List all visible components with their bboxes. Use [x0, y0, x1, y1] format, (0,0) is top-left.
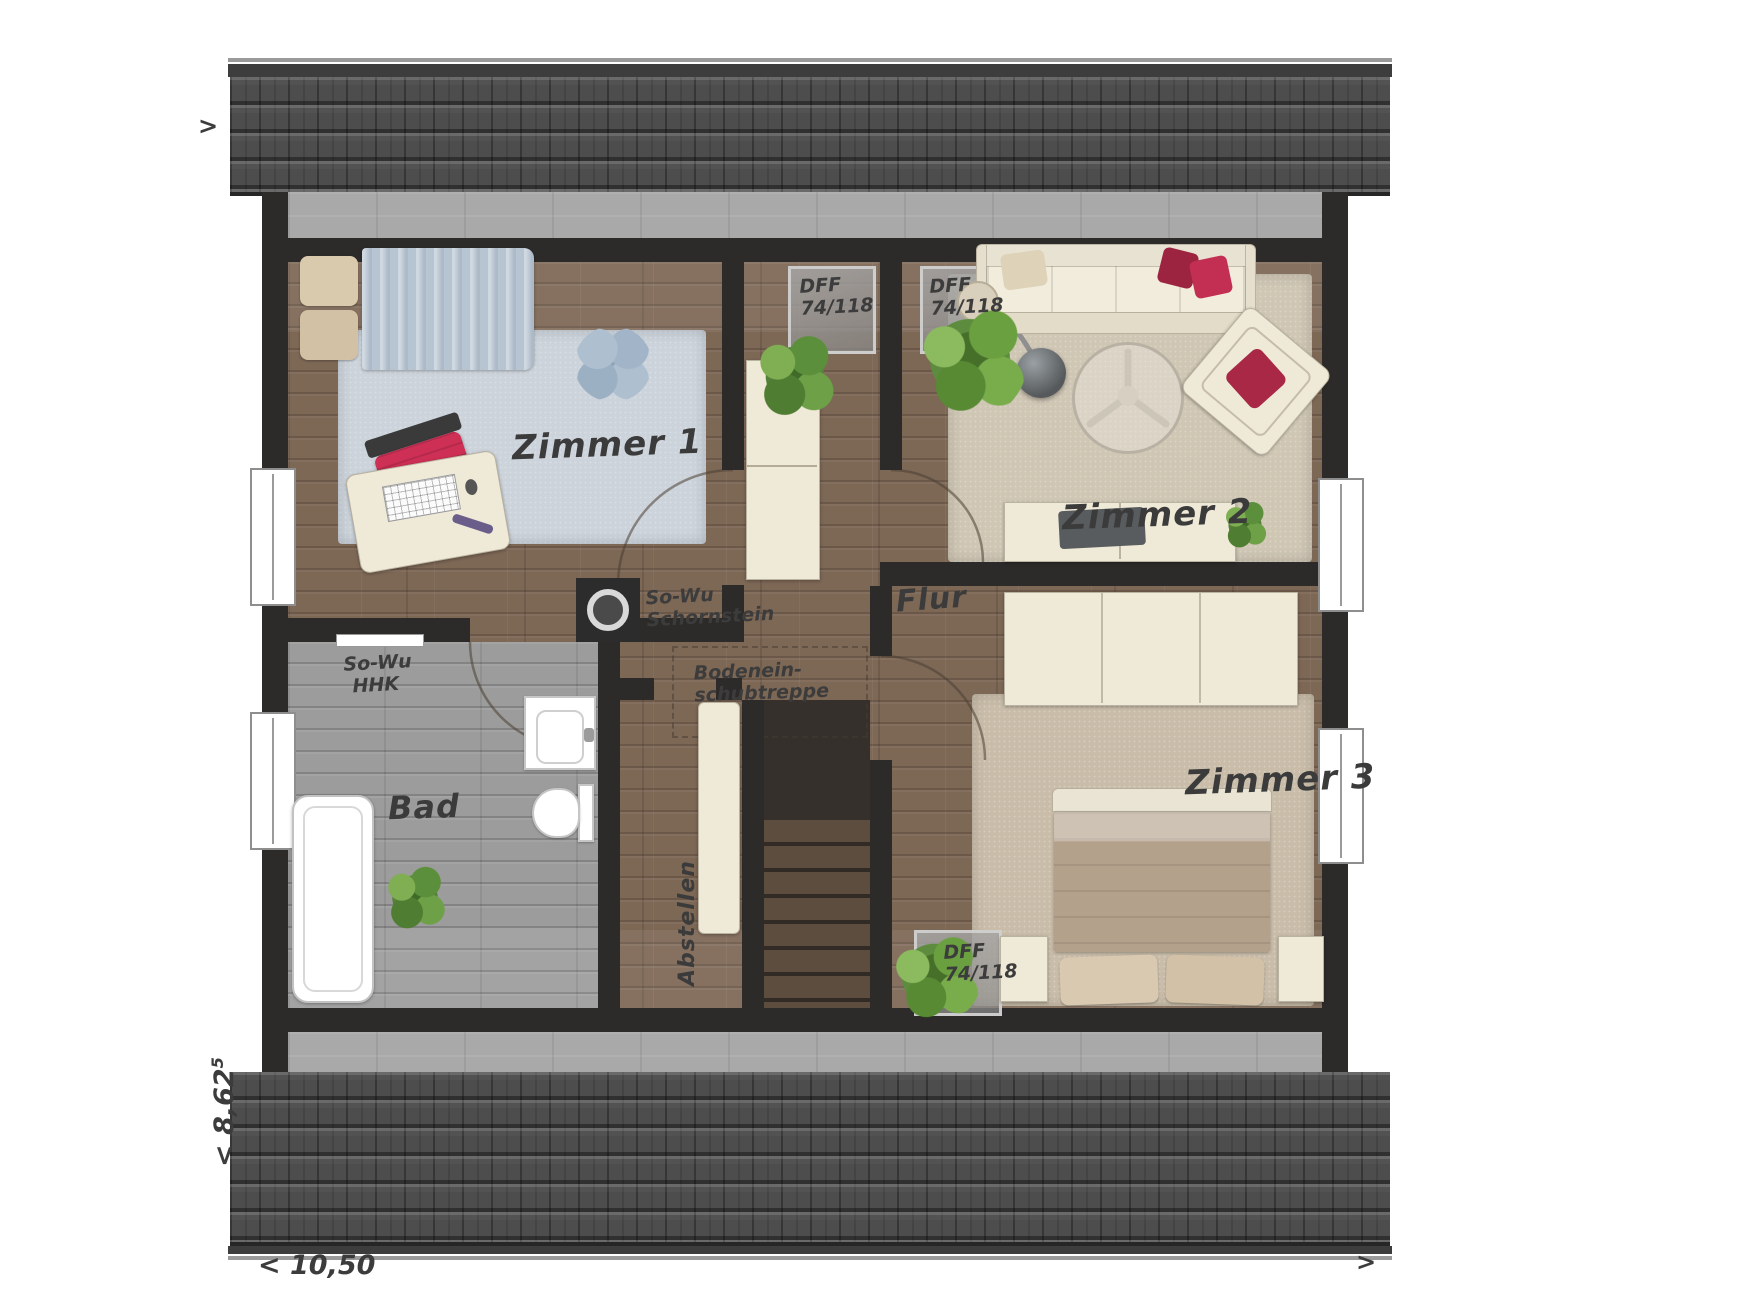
zimmer1-label: Zimmer 1: [511, 422, 703, 469]
washbasin-bowl: [536, 710, 584, 764]
zimmer3-door-arc: [881, 656, 985, 760]
washbasin-tap: [584, 728, 594, 742]
window-left-1: [250, 468, 296, 606]
window-left-2: [250, 712, 296, 850]
outer-wall-left: [262, 192, 288, 1072]
wall-zimmer1-hall-upper: [722, 262, 744, 470]
hhk-note-line2: HHK: [344, 672, 413, 698]
sofa-pillow-red: [1188, 254, 1233, 299]
desk-pen: [451, 513, 494, 535]
floor-plan-canvas: Zimmer 1 Zimmer 2 Zimmer 3 Bad Flur Abst…: [0, 0, 1754, 1316]
bed-pillow: [300, 256, 358, 306]
dimension-width: < 10,50: [258, 1250, 375, 1281]
zimmer3-label: Zimmer 3: [1184, 757, 1376, 804]
zimmer2-door-arc: [891, 470, 983, 562]
wall-zimmer3-hall-stub: [870, 586, 892, 656]
wall-bad-abstellen: [598, 642, 620, 1008]
dimension-depth-sup: 5: [208, 1057, 227, 1068]
hall-skylight-plant: [752, 330, 838, 422]
wall-zimmer2-hall: [880, 262, 902, 470]
zimmer2-sofa: [976, 244, 1254, 334]
sideboard-divider: [1101, 593, 1103, 703]
toilet-bowl: [532, 788, 580, 838]
loft-ladder-note: Bodenein- schubtreppe: [693, 658, 829, 707]
sideboard-divider: [1199, 593, 1201, 703]
skylight-label-line2: 74/118: [944, 960, 1018, 986]
wall-abstellen-top-left: [620, 678, 654, 700]
nightstand-right: [1278, 936, 1324, 1002]
dimension-depth: < 8,625: [208, 1037, 242, 1187]
zimmer3-bed: [1052, 788, 1272, 1008]
zimmer2-label: Zimmer 2: [1061, 492, 1253, 539]
chimney-block: [576, 578, 640, 642]
bed-blanket: [362, 248, 534, 370]
bathtub: [292, 795, 374, 1003]
loft-note-line2: schubtreppe: [694, 680, 829, 707]
window-glass-line: [272, 474, 274, 600]
hhk-note: So-Wu HHK: [343, 650, 413, 698]
dimension-depth-value: < 8,62: [209, 1068, 240, 1167]
bathroom-plant: [382, 862, 448, 934]
zimmer1-door-arc: [618, 470, 733, 585]
chimney-note: So-Wu Schornstein: [645, 581, 775, 632]
abstellen-label: Abstellen: [675, 841, 705, 1005]
hhk-heater-marker: [336, 634, 424, 647]
skylight-label-line2: 74/118: [930, 294, 1004, 320]
skylight-zimmer3-label: DFF 74/118: [943, 938, 1018, 986]
outer-wall-right: [1322, 192, 1348, 1072]
window-glass-line: [1340, 484, 1342, 606]
toilet-tank: [578, 784, 594, 842]
round-coffee-table: [1072, 342, 1184, 454]
chimney-flue-icon: [587, 589, 629, 631]
hhk-note-line1: So-Wu: [343, 650, 412, 676]
wardrobe-divider: [747, 465, 817, 467]
zimmer1-bed: [294, 248, 534, 370]
washbasin: [524, 696, 596, 770]
zimmer3-sideboard: [1004, 592, 1298, 706]
bad-label: Bad: [387, 787, 460, 827]
keyboard: [382, 474, 461, 522]
skylight-hall-label: DFF 74/118: [799, 272, 874, 320]
sofa-pillow-beige: [1000, 249, 1049, 291]
skylight-zimmer2-label: DFF 74/118: [929, 272, 1004, 320]
sofa-front-edge: [986, 312, 1246, 334]
bed-pillow: [300, 310, 358, 360]
arrow-bottom-right: >: [1356, 1248, 1376, 1276]
toilet: [532, 780, 596, 846]
bed-pillow: [1165, 954, 1265, 1005]
skylight-label-line2: 74/118: [800, 294, 874, 320]
desk-mouse: [464, 478, 479, 496]
north-arrow-top: >: [198, 112, 218, 140]
bed-pillow: [1059, 954, 1159, 1005]
bed-blanket: [1054, 812, 1270, 952]
wall-abstellen-stairs: [742, 700, 764, 1008]
flur-label: Flur: [895, 580, 968, 620]
window-glass-line: [272, 718, 274, 844]
outer-wall-bottom: [262, 1008, 1348, 1032]
window-right-1: [1318, 478, 1364, 612]
bathtub-basin: [303, 806, 363, 992]
